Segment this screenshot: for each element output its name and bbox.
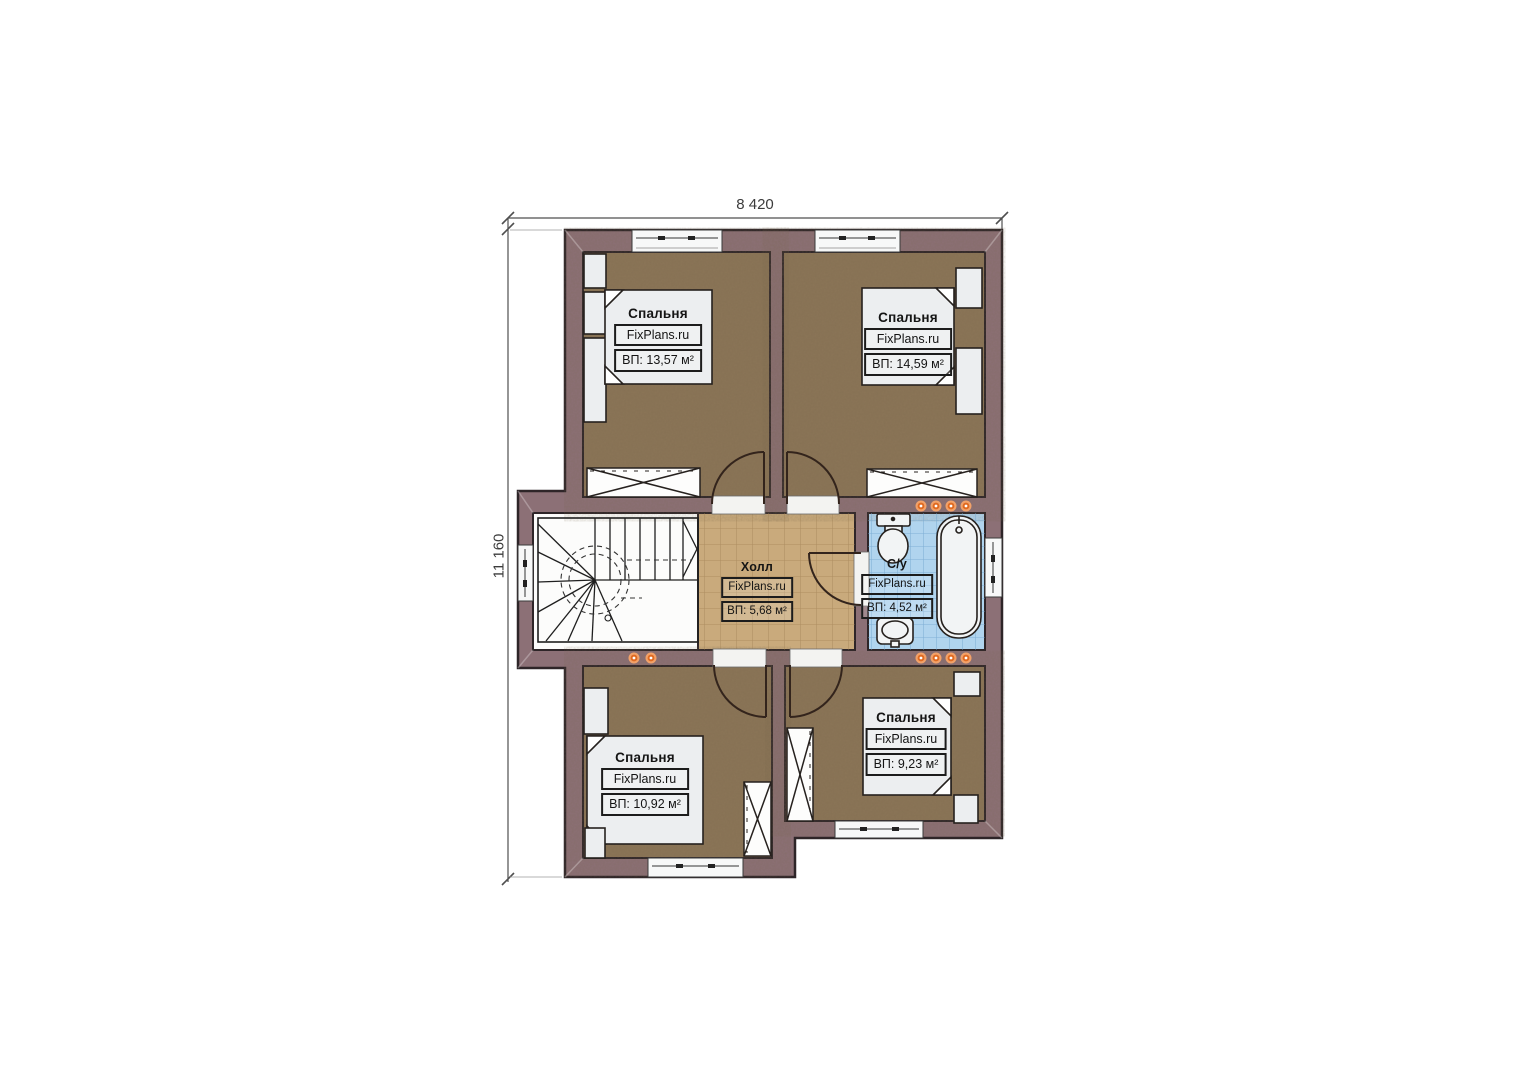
bathtub: [937, 516, 981, 638]
area-box: ВП: 10,92 м²: [601, 793, 689, 815]
cabinet: [584, 254, 606, 288]
area-box: ВП: 14,59 м²: [864, 353, 952, 375]
room-name: Спальня: [864, 310, 952, 325]
window-top-2: [815, 230, 900, 252]
window-bathroom: [985, 538, 1002, 597]
room-name: Спальня: [866, 710, 947, 725]
bedroom-bottom-left-label: Спальня FixPlans.ru ВП: 10,92 м²: [601, 750, 689, 816]
brand-box: FixPlans.ru: [601, 768, 689, 790]
dimension-width-label: 8 420: [736, 196, 774, 213]
nightstand: [954, 795, 978, 823]
wardrobe: [744, 782, 771, 856]
brand-box: FixPlans.ru: [721, 577, 793, 598]
bedroom-bottom-right-label: Спальня FixPlans.ru ВП: 9,23 м²: [866, 710, 947, 776]
window-bottom-left: [648, 858, 743, 877]
area-box: ВП: 4,52 м²: [861, 598, 933, 619]
room-name: Холл: [721, 560, 793, 574]
wardrobe: [587, 468, 700, 497]
area-box: ВП: 5,68 м²: [721, 601, 793, 622]
nightstand: [584, 292, 606, 334]
area-box: ВП: 13,57 м²: [614, 349, 702, 371]
bedroom-top-right-label: Спальня FixPlans.ru ВП: 14,59 м²: [864, 310, 952, 376]
window-stair-bay: [518, 545, 533, 601]
toilet: [877, 514, 910, 563]
wardrobe: [867, 469, 977, 497]
sink: [877, 618, 913, 647]
bedroom-top-left-label: Спальня FixPlans.ru ВП: 13,57 м²: [614, 306, 702, 372]
area-box: ВП: 9,23 м²: [866, 753, 947, 775]
room-name: С/у: [861, 557, 933, 571]
room-name: Спальня: [614, 306, 702, 321]
dresser: [584, 338, 606, 422]
nightstand: [954, 672, 980, 696]
room-name: Спальня: [601, 750, 689, 765]
bathroom-label: С/у FixPlans.ru ВП: 4,52 м²: [861, 557, 933, 619]
wardrobe: [787, 728, 813, 821]
brand-box: FixPlans.ru: [866, 728, 947, 750]
hall-label: Холл FixPlans.ru ВП: 5,68 м²: [721, 560, 793, 622]
brand-box: FixPlans.ru: [614, 324, 702, 346]
brand-box: FixPlans.ru: [861, 574, 933, 595]
dresser: [956, 348, 982, 414]
floor-plan-drawing: [0, 0, 1528, 1080]
brand-box: FixPlans.ru: [864, 328, 952, 350]
nightstand: [584, 688, 608, 734]
window-top-1: [632, 230, 722, 252]
floor-plan-page: 8 420 11 160 Спальня FixPlans.ru ВП: 13,…: [0, 0, 1528, 1080]
nightstand: [585, 828, 605, 858]
dimension-height-label: 11 160: [491, 534, 508, 579]
window-bottom-right: [835, 821, 923, 838]
nightstand: [956, 268, 982, 308]
